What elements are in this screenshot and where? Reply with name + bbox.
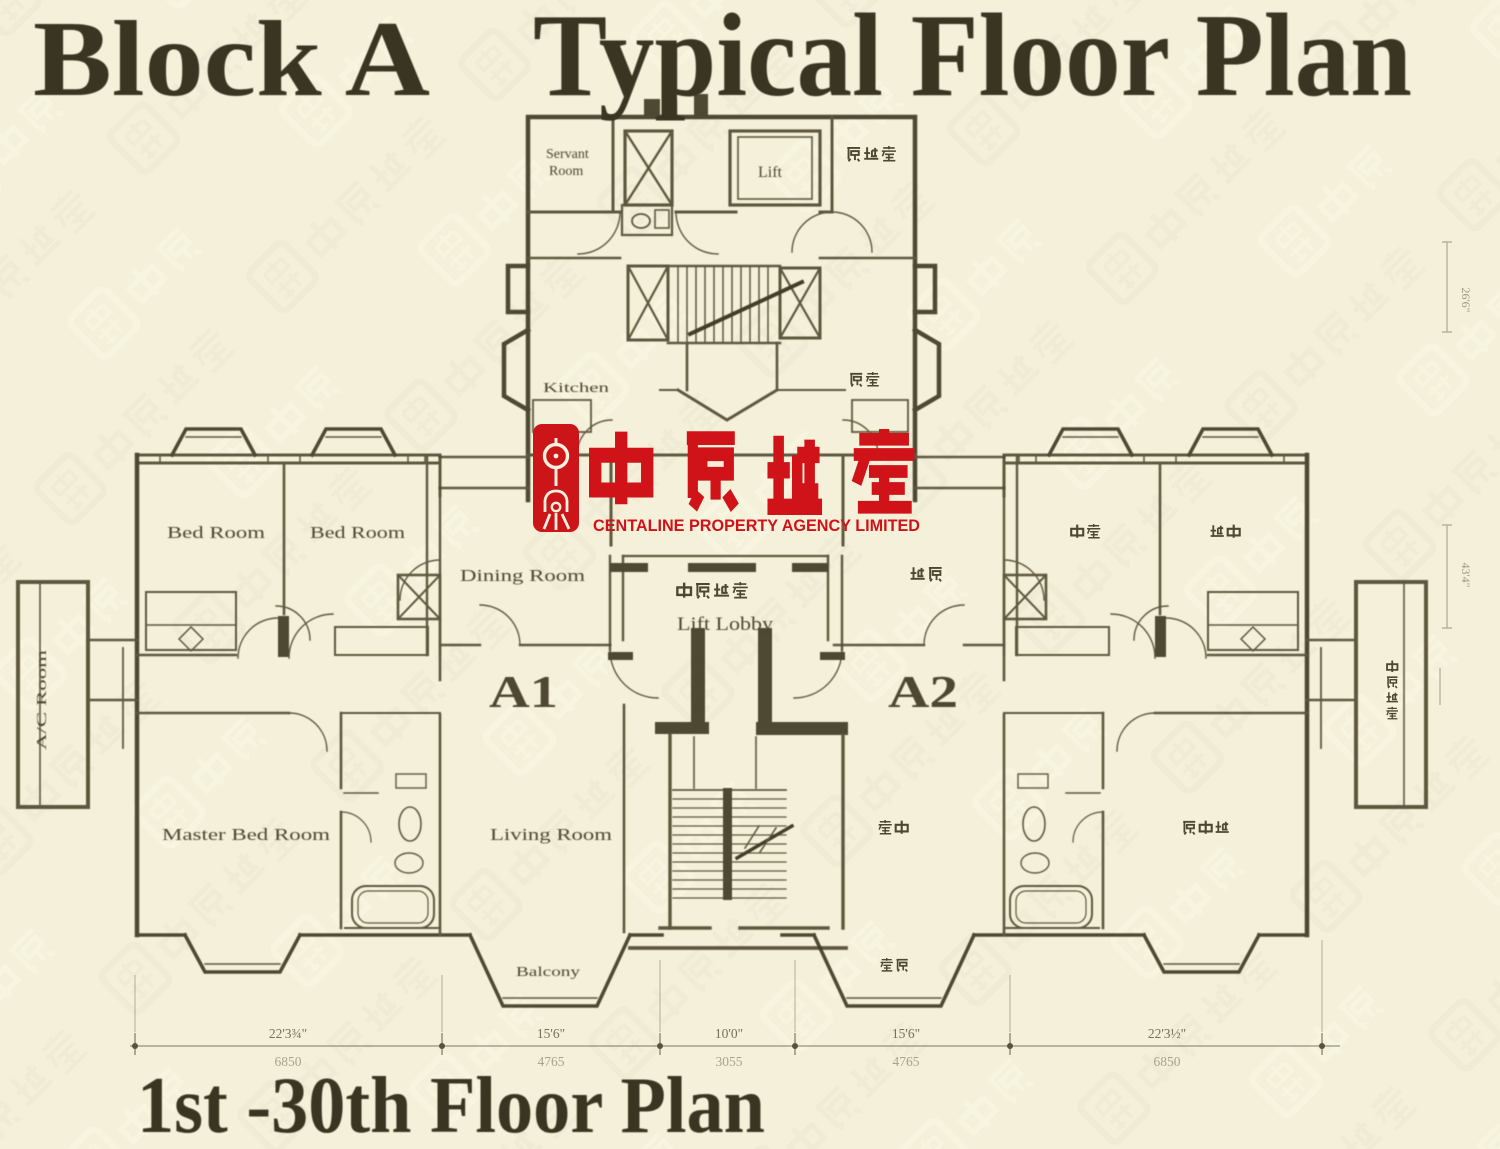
svg-text:Master Bed Room: Master Bed Room <box>162 825 330 844</box>
svg-text:Kitchen: Kitchen <box>543 381 609 396</box>
svg-text:Living Room: Living Room <box>490 825 612 844</box>
svg-text:Lift Lobby: Lift Lobby <box>677 614 774 635</box>
svg-text:Bed Room: Bed Room <box>310 523 405 542</box>
svg-text:22'3½": 22'3½" <box>1148 1026 1186 1041</box>
svg-text:Block A: Block A <box>33 0 430 119</box>
svg-text:4765: 4765 <box>893 1054 920 1069</box>
svg-text:1st -30th Floor Plan: 1st -30th Floor Plan <box>137 1062 765 1149</box>
svg-text:15'6": 15'6" <box>537 1026 565 1041</box>
svg-text:A/C Room: A/C Room <box>35 650 50 750</box>
svg-text:43'4": 43'4" <box>1459 562 1473 587</box>
svg-text:Servant: Servant <box>546 147 589 162</box>
svg-text:22'3¾": 22'3¾" <box>269 1026 307 1041</box>
svg-text:CENTALINE PROPERTY AGENCY LIMI: CENTALINE PROPERTY AGENCY LIMITED <box>593 516 920 535</box>
svg-text:Lift: Lift <box>758 164 783 181</box>
svg-text:6850: 6850 <box>1154 1054 1181 1069</box>
svg-text:A1: A1 <box>489 666 558 717</box>
svg-text:15'6": 15'6" <box>892 1026 920 1041</box>
svg-text:26'6": 26'6" <box>1459 287 1473 312</box>
svg-text:Bed Room: Bed Room <box>167 523 265 542</box>
svg-text:Dining Room: Dining Room <box>460 566 585 585</box>
svg-text:A2: A2 <box>888 666 958 717</box>
svg-text:Typical Floor Plan: Typical Floor Plan <box>533 0 1412 121</box>
svg-text:Balcony: Balcony <box>516 965 580 980</box>
svg-text:10'0": 10'0" <box>715 1026 743 1041</box>
svg-text:Room: Room <box>549 164 583 179</box>
